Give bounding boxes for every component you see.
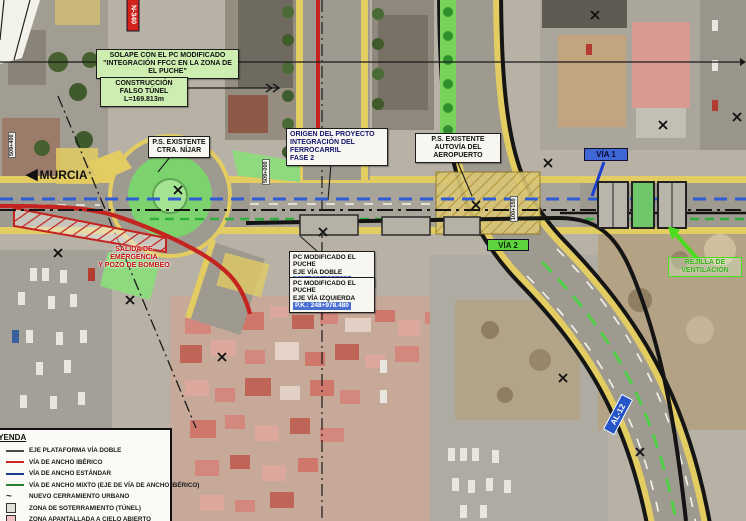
legend-swatch-box [6, 515, 24, 521]
legend-label: VÍA DE ANCHO IBÉRICO [29, 459, 102, 466]
annotation-falso-tunel: CONSTRUCCIÓN FALSO TÚNEL L=169.813m [100, 77, 188, 107]
pk-marker-center: 509+000 [262, 159, 270, 185]
legend-swatch-box [6, 503, 24, 513]
legend-item: VÍA DE ANCHO MIXTO (EJE DE VÍA DE ANCHO … [6, 480, 166, 492]
legend-label: VÍA DE ANCHO ESTÁNDAR [29, 470, 111, 477]
legend-item: VÍA DE ANCHO IBÉRICO [6, 457, 166, 469]
legend-swatch-line [6, 473, 24, 475]
pc-doble-line2: EJE VÍA DOBLE [293, 269, 371, 276]
legend-item: VÍA DE ANCHO ESTÁNDAR [6, 468, 166, 480]
pk-left-text: 509+400 [9, 134, 15, 156]
annotation-solape-pc-modificado: SOLAPE CON EL PC MODIFICADO "INTEGRACIÓN… [96, 49, 239, 79]
origen-line2: INTEGRACIÓN DEL FERROCARRIL [290, 139, 384, 155]
pk-marker-right: 100+150 [510, 196, 518, 222]
legend-items: EJE PLATAFORMA VÍA DOBLEVÍA DE ANCHO IBÉ… [6, 445, 166, 521]
ps-nijar-line2: CTRA. NÍJAR [152, 147, 206, 155]
origen-line3: FASE 2 [290, 155, 384, 163]
legend-swatch-line [6, 450, 24, 452]
pk-marker-left: 509+400 [8, 132, 16, 158]
legend-item: ~NUEVO CERRAMIENTO URBANO [6, 491, 166, 503]
pk-right-text: 100+150 [511, 198, 517, 220]
legend-swatch-line [6, 461, 24, 463]
via2-badge: VÍA 2 [487, 239, 529, 251]
pc-izq-line2: EJE VÍA IZQUIERDA [293, 295, 371, 302]
n340-road-badge: N-340 [127, 0, 140, 32]
ps-aeropuerto-line2: AUTOVÍA DEL AEROPUERTO [419, 144, 497, 160]
via1-text: VÍA 1 [596, 150, 616, 159]
legend-item: ZONA DE SOTERRAMIENTO (TÚNEL) [6, 503, 166, 515]
legend-label: ZONA APANTALLADA A CIELO ABIERTO [29, 516, 151, 521]
n340-text: N-340 [130, 5, 137, 24]
salida-line2: Y POZO DE BOMBEO [96, 262, 172, 270]
murcia-text: MURCIA [40, 168, 88, 182]
annotation-rejilla-ventilacion: REJILLA DE VENTILACIÓN [668, 257, 742, 277]
solape-line2: "INTEGRACIÓN FFCC EN LA ZONA DE EL PUCHE… [100, 60, 235, 76]
murcia-arrow-icon: ◀ [26, 170, 38, 180]
solape-line1: SOLAPE CON EL PC MODIFICADO [100, 52, 235, 60]
legend-panel: LEYENDA EJE PLATAFORMA VÍA DOBLEVÍA DE A… [0, 428, 172, 521]
annotation-ps-existente-aeropuerto: P.S. EXISTENTE AUTOVÍA DEL AEROPUERTO [415, 133, 501, 163]
rejilla-text: REJILLA DE VENTILACIÓN [681, 259, 728, 274]
pc-doble-line1: PC MODIFICADO EL PUCHE [293, 254, 371, 269]
salida-line1: SALIDA DE EMERGENCIA [96, 246, 172, 262]
annotation-pc-modificado-via-izquierda: PC MODIFICADO EL PUCHE EJE VÍA IZQUIERDA… [289, 277, 375, 313]
legend-item: ZONA APANTALLADA A CIELO ABIERTO [6, 514, 166, 521]
ventilation-grilles [598, 182, 686, 228]
falso-tunel-line1: CONSTRUCCIÓN FALSO TÚNEL [104, 80, 184, 96]
murcia-direction-label: ◀ MURCIA [26, 168, 88, 182]
legend-label: VÍA DE ANCHO MIXTO (EJE DE VÍA DE ANCHO … [29, 482, 199, 489]
legend-label: NUEVO CERRAMIENTO URBANO [29, 493, 129, 500]
legend-swatch-wave: ~ [6, 493, 24, 501]
legend-item: EJE PLATAFORMA VÍA DOBLE [6, 445, 166, 457]
legend-title: LEYENDA [0, 433, 166, 442]
annotation-salida-emergencia: SALIDA DE EMERGENCIA Y POZO DE BOMBEO [96, 246, 172, 270]
pk-center-text: 509+000 [263, 161, 269, 183]
via1-badge: VÍA 1 [584, 148, 628, 161]
ps-aeropuerto-line1: P.S. EXISTENTE [419, 136, 497, 144]
annotation-ps-existente-nijar: P.S. EXISTENTE CTRA. NÍJAR [148, 136, 210, 158]
via2-text: VÍA 2 [498, 241, 518, 250]
falso-tunel-length: L=169.813m [104, 96, 184, 104]
legend-label: EJE PLATAFORMA VÍA DOBLE [29, 447, 121, 454]
aerial-plan-map: SOLAPE CON EL PC MODIFICADO "INTEGRACIÓN… [0, 0, 746, 521]
ps-nijar-line1: P.S. EXISTENTE [152, 139, 206, 147]
origen-line1: ORIGEN DEL PROYECTO [290, 131, 384, 139]
annotation-origen-proyecto: ORIGEN DEL PROYECTO INTEGRACIÓN DEL FERR… [286, 128, 388, 166]
legend-label: ZONA DE SOTERRAMIENTO (TÚNEL) [29, 505, 141, 512]
legend-swatch-line [6, 484, 24, 486]
pc-izq-line1: PC MODIFICADO EL PUCHE [293, 280, 371, 295]
pc-izq-pk: P.K.: 248+978.480 [293, 302, 351, 309]
